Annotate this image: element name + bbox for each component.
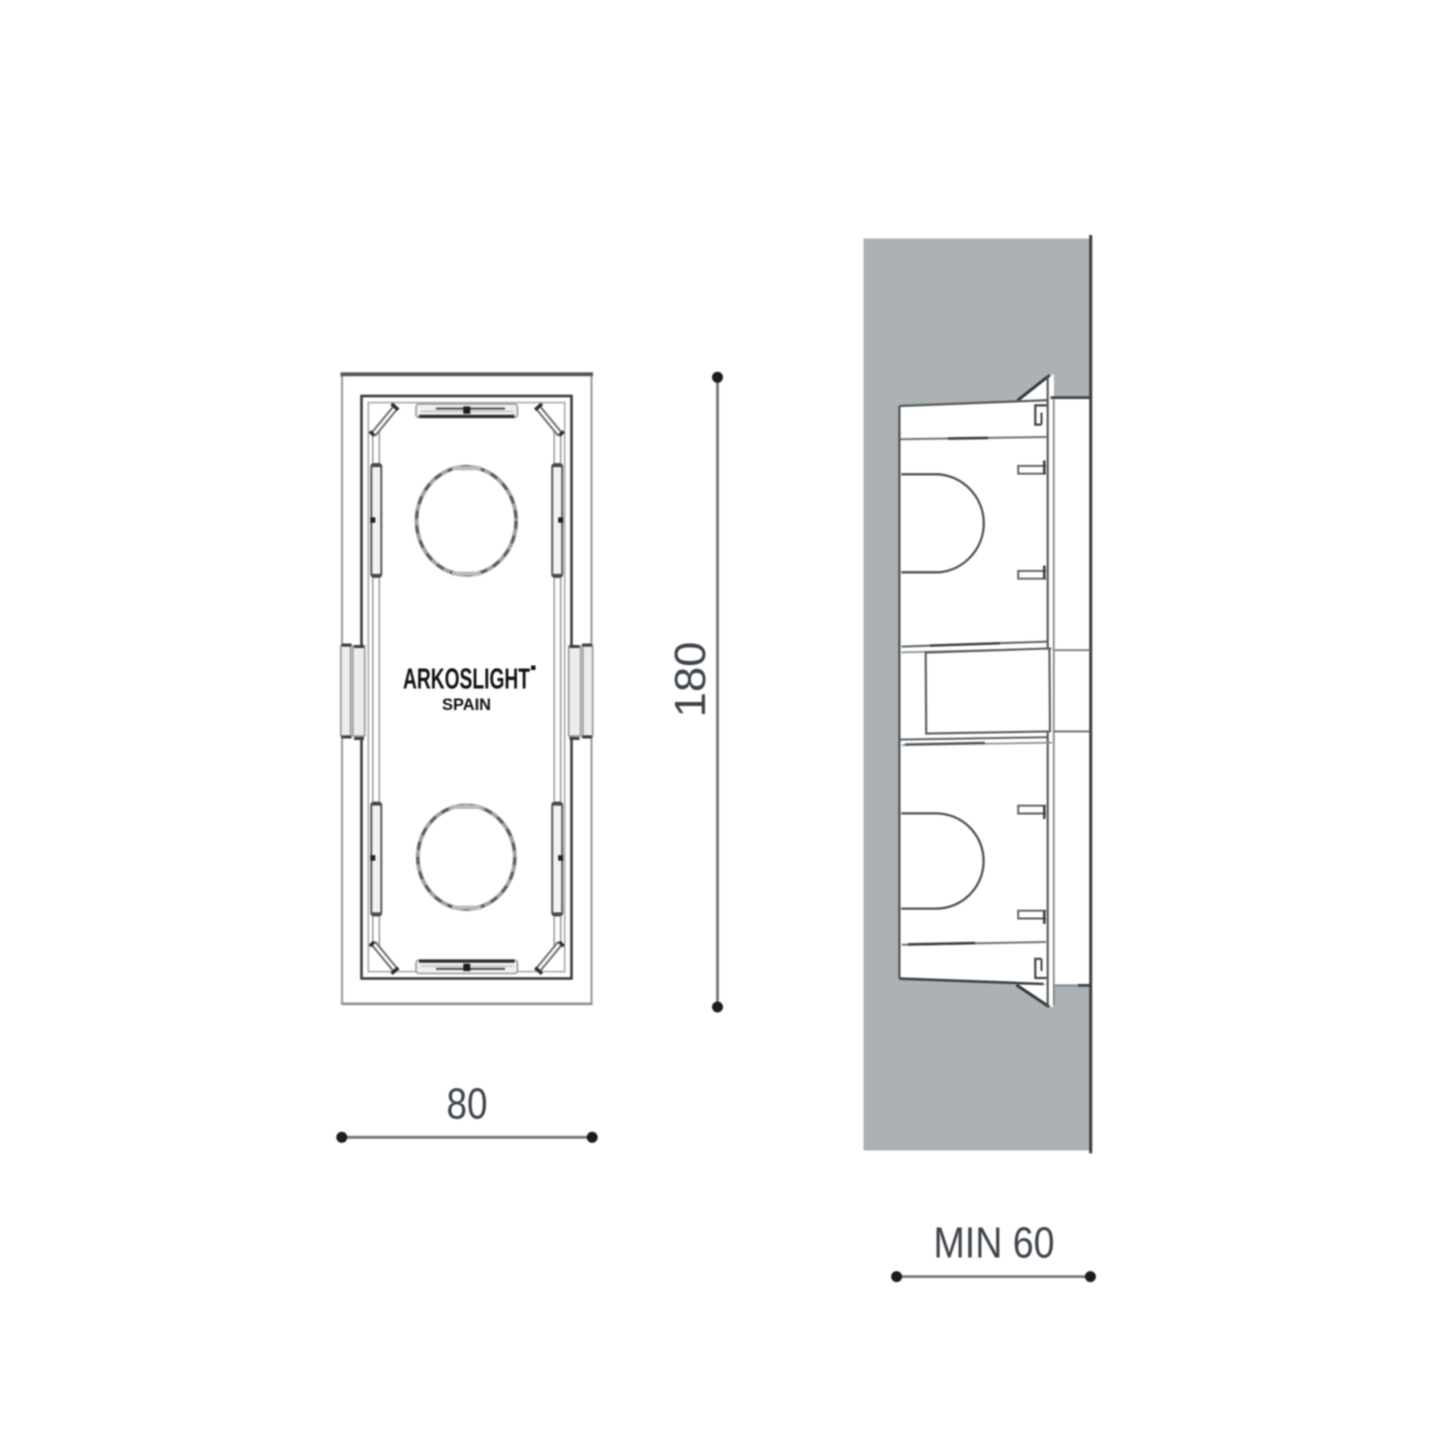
svg-text:180: 180 (666, 642, 715, 718)
svg-text:80: 80 (447, 1080, 488, 1129)
svg-text:SPAIN: SPAIN (442, 696, 491, 714)
svg-text:MIN 60: MIN 60 (934, 1219, 1055, 1268)
svg-text:ARKOSLIGHT: ARKOSLIGHT (403, 664, 530, 696)
